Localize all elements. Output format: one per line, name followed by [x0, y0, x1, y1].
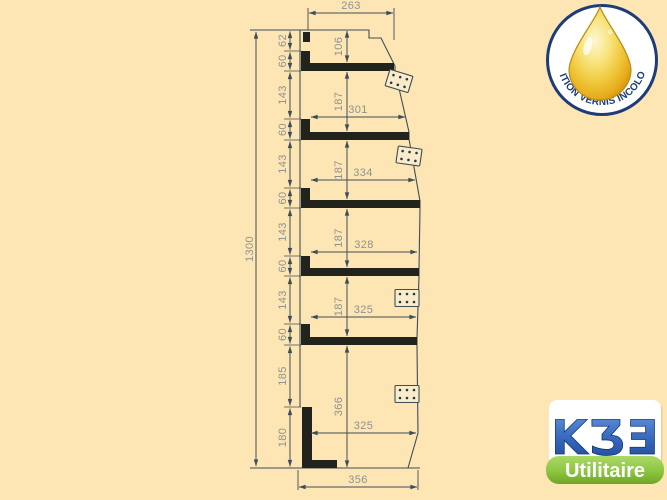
dimension-label: 187 — [333, 297, 345, 317]
dimension-label: 106 — [333, 37, 345, 57]
dimension-label: 143 — [277, 85, 289, 105]
shelf-3-surface — [301, 200, 420, 208]
rivet-dot — [399, 301, 402, 304]
back-panel-tab — [303, 32, 310, 42]
dimension-label: 301 — [348, 104, 368, 116]
logo-tagline: Utilitaire — [565, 460, 645, 482]
rivet-dot — [406, 293, 409, 296]
dimension-label: 60 — [277, 259, 289, 272]
dimension-label: 60 — [277, 54, 289, 67]
shelf-4-lip — [301, 256, 310, 269]
rivet-plate-body — [396, 146, 422, 166]
page-background: 6260143601436014360143601851801300106187… — [0, 0, 667, 500]
rivet-dot — [399, 397, 402, 400]
rivet-plate-body — [385, 69, 413, 92]
shelf-2-surface — [301, 132, 409, 140]
dimension-label: 185 — [277, 366, 289, 386]
mounting-brackets — [385, 69, 422, 402]
dimension-label: 366 — [333, 397, 345, 417]
rivet-plate — [385, 69, 413, 92]
dimension-label: 187 — [333, 92, 345, 112]
rivet-dot — [406, 301, 409, 304]
rivet-dot — [406, 389, 409, 392]
rivet-dot — [413, 397, 416, 400]
dimension-label: 263 — [341, 0, 361, 12]
dimension-label: 143 — [277, 222, 289, 242]
rivet-dot — [399, 389, 402, 392]
shelf-5-surface — [301, 337, 417, 345]
dimension-label: 143 — [277, 290, 289, 310]
shelf-4-surface — [301, 268, 419, 276]
bottom-shelf-surface — [302, 460, 337, 468]
dimension-label: 180 — [277, 428, 289, 448]
finition-badge: FINITION VERNIS INCOLORE — [536, 0, 656, 115]
dimension-label: 60 — [277, 191, 289, 204]
shelf-1-surface — [301, 63, 394, 71]
shelf-2-lip — [301, 119, 310, 133]
dimension-label: 356 — [348, 474, 368, 486]
dimension-label: 1300 — [244, 236, 256, 262]
dimension-label: 334 — [353, 167, 373, 179]
shelving-technical-drawing: 6260143601436014360143601851801300106187… — [0, 0, 667, 500]
rivet-plate — [395, 386, 419, 403]
rivet-plate-body — [395, 386, 419, 403]
shelf-3-lip — [301, 188, 310, 201]
dimension-label: 187 — [333, 160, 345, 180]
rivet-plate — [395, 290, 419, 307]
rivet-dot — [406, 397, 409, 400]
dimension-label: 187 — [333, 228, 345, 248]
dimension-label: 60 — [277, 123, 289, 136]
dimension-label: 328 — [354, 239, 374, 251]
rivet-plate-body — [395, 290, 419, 307]
shelf-1-lip — [301, 51, 310, 64]
dimension-label: 143 — [277, 154, 289, 174]
bottom-shelf-lip — [302, 407, 312, 468]
drop-highlight-small — [608, 30, 613, 35]
rivet-plate — [396, 146, 422, 166]
rivet-dot — [413, 389, 416, 392]
rivet-dot — [413, 301, 416, 304]
dimension-label: 62 — [277, 34, 289, 47]
dimension-label: 325 — [354, 420, 374, 432]
rivet-dot — [413, 293, 416, 296]
shelf-5-lip — [301, 324, 310, 338]
dimension-label: 60 — [277, 328, 289, 341]
dimension-label: 325 — [354, 304, 374, 316]
kbe-logo: KƷƎ Utilitaire — [546, 400, 664, 484]
rivet-dot — [399, 293, 402, 296]
